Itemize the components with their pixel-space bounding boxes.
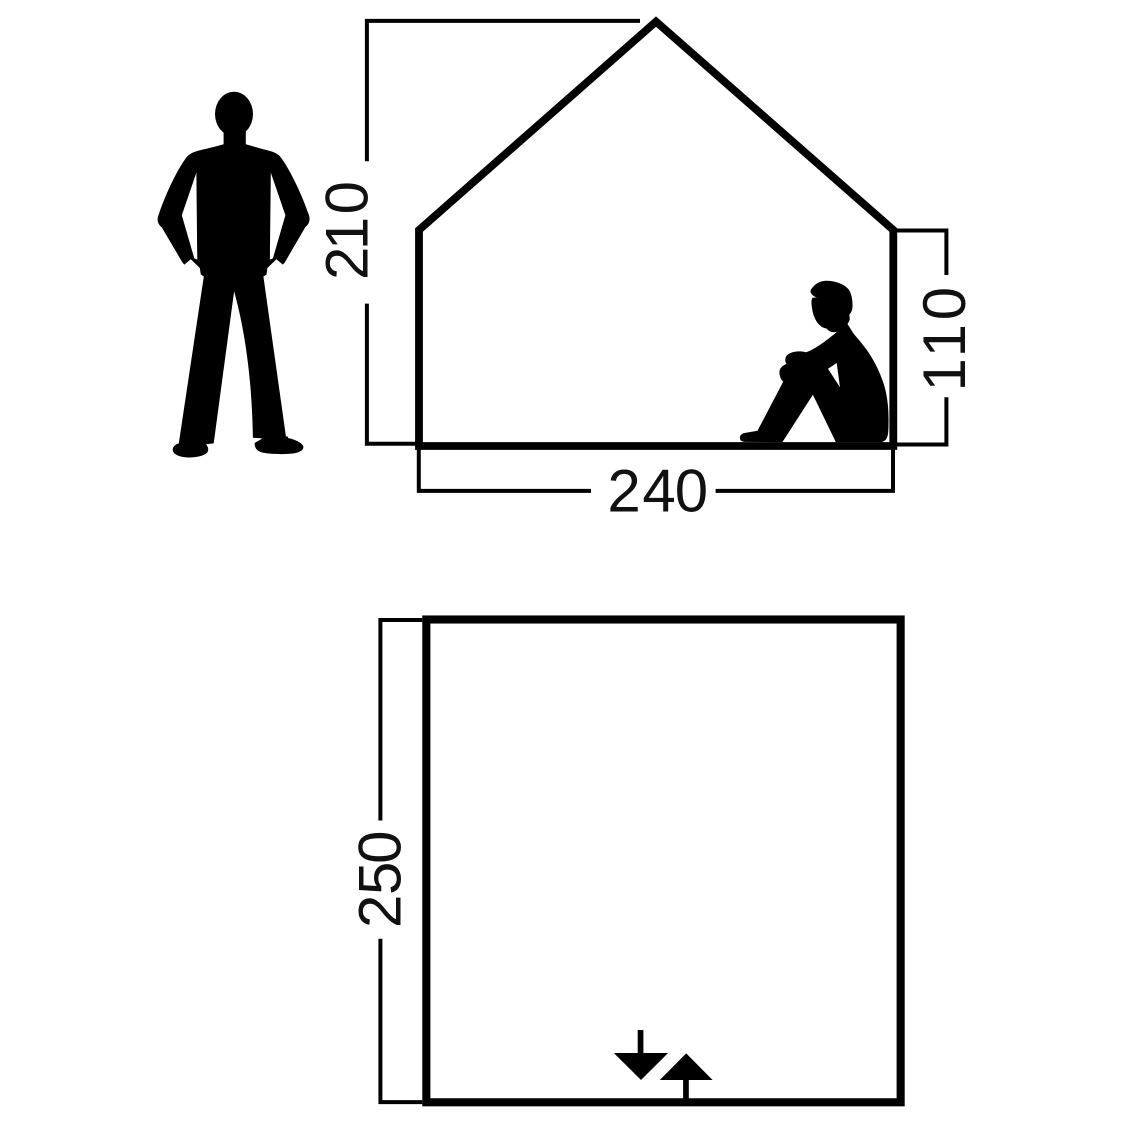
svg-text:240: 240 — [607, 458, 708, 525]
svg-text:210: 210 — [314, 181, 381, 280]
svg-text:110: 110 — [911, 287, 978, 392]
svg-text:250: 250 — [347, 831, 414, 928]
